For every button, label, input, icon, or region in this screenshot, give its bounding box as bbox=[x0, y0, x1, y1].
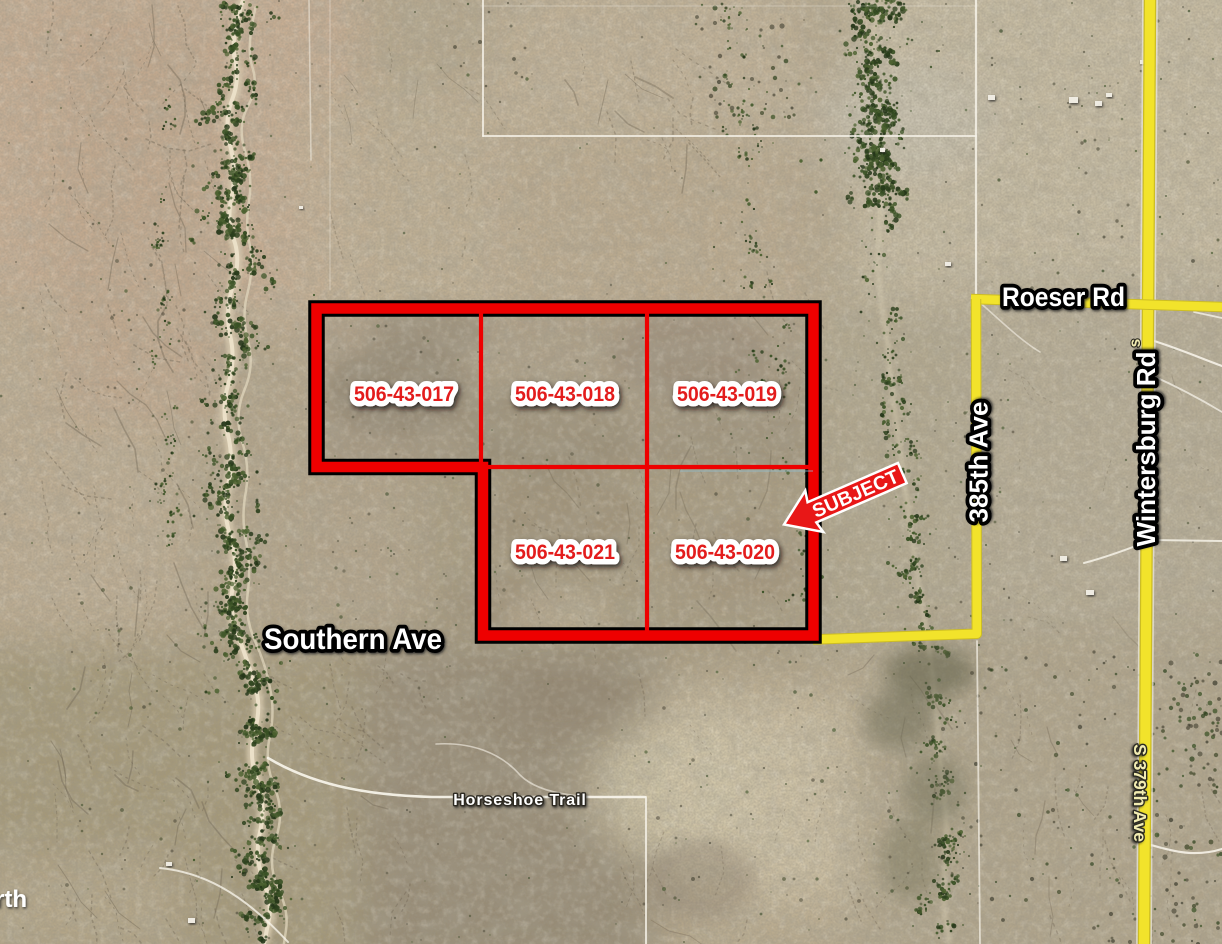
svg-text:Southern Ave: Southern Ave bbox=[264, 623, 442, 656]
svg-text:Wintersburg Rd: Wintersburg Rd bbox=[1131, 352, 1161, 547]
svg-text:S 379th Ave: S 379th Ave bbox=[1130, 744, 1150, 842]
svg-text:506-43-018: 506-43-018 bbox=[515, 382, 615, 406]
svg-text:506-43-020: 506-43-020 bbox=[675, 540, 775, 564]
svg-text:rth: rth bbox=[0, 886, 27, 913]
svg-text:506-43-021: 506-43-021 bbox=[515, 540, 615, 564]
svg-text:Roeser Rd: Roeser Rd bbox=[1002, 282, 1125, 312]
svg-text:s: s bbox=[1127, 339, 1144, 348]
svg-text:506-43-019: 506-43-019 bbox=[677, 382, 777, 406]
svg-text:506-43-017: 506-43-017 bbox=[354, 382, 454, 406]
svg-text:Horseshoe Trail: Horseshoe Trail bbox=[453, 792, 587, 809]
svg-text:385th Ave: 385th Ave bbox=[964, 402, 994, 523]
